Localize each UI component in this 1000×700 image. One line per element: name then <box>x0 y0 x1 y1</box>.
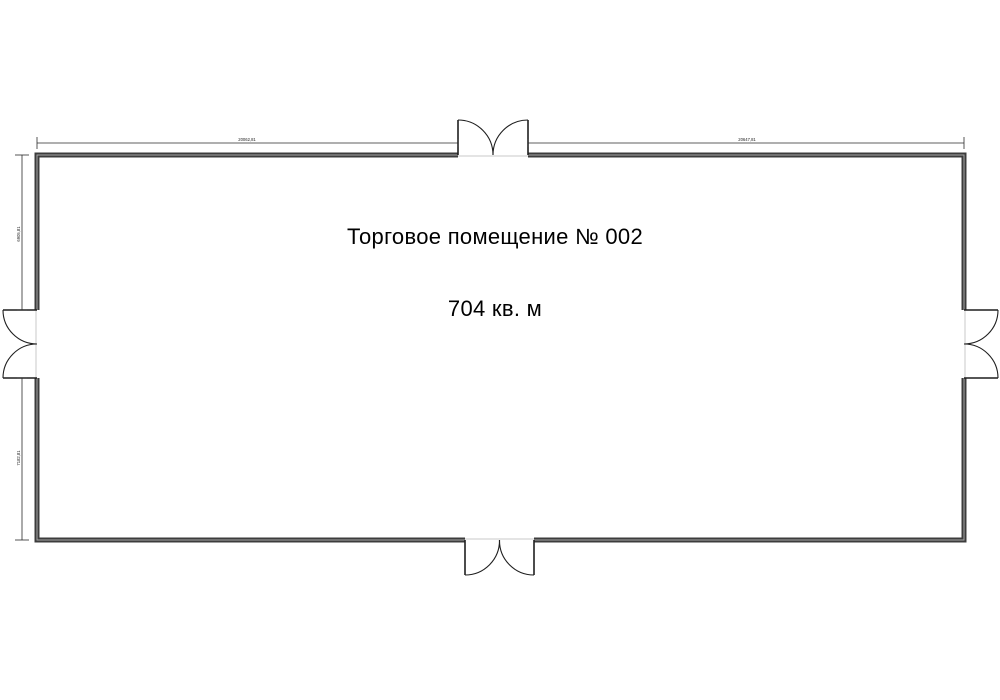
wall-core-bottom-right <box>534 378 964 540</box>
wall-bottom-left <box>37 378 465 540</box>
floor-plan-canvas: 20062,81 20647,81 6905,81 7182,81 <box>0 0 1000 700</box>
wall-core-bottom-left <box>37 378 465 540</box>
dimension-label-left-upper: 6905,81 <box>16 226 21 242</box>
door-right <box>964 310 998 378</box>
door-left-top-arc <box>3 310 37 344</box>
door-left <box>3 310 37 378</box>
door-right-bottom-arc <box>964 344 998 378</box>
door-bottom <box>465 540 534 575</box>
door-top <box>458 120 528 155</box>
door-bottom-right-arc <box>499 540 534 575</box>
room-walls <box>37 155 964 540</box>
door-thresholds <box>36 156 965 539</box>
room-title: Торговое помещение № 002 <box>347 224 643 250</box>
door-top-left-arc <box>458 120 493 155</box>
dimension-label-top-left: 20062,81 <box>238 137 256 142</box>
dimension-label-left-lower: 7182,81 <box>16 450 21 466</box>
wall-bottom-right <box>534 378 964 540</box>
floor-plan: 20062,81 20647,81 6905,81 7182,81 Торгов… <box>0 0 1000 700</box>
dimension-top: 20062,81 20647,81 <box>37 137 964 149</box>
door-right-top-arc <box>964 310 998 344</box>
dimension-label-top-right: 20647,81 <box>738 137 756 142</box>
door-left-bottom-arc <box>3 344 37 378</box>
door-bottom-left-arc <box>465 540 500 575</box>
door-top-right-arc <box>493 120 528 155</box>
room-area-label: 704 кв. м <box>448 296 542 322</box>
